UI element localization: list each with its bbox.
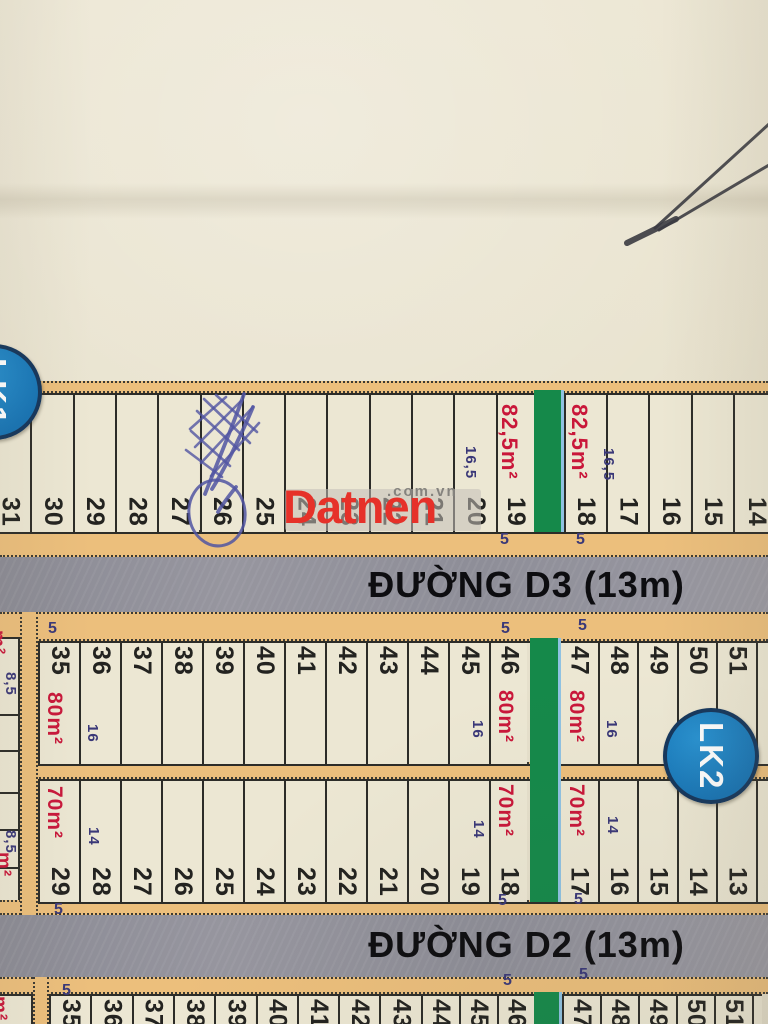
plot-number: 46 (502, 996, 531, 1024)
plot-number: 47 (567, 996, 596, 1024)
plot-number: 13 (722, 864, 751, 902)
plot-number: 42 (345, 996, 374, 1024)
area-label: 80m² (42, 692, 66, 745)
land-plot-map-photo: ĐƯỜNG D3 (13m) ĐƯỜNG D2 (13m) 3130292827… (0, 0, 768, 1024)
plot-number: 25 (249, 494, 278, 532)
area-label: 70m² (564, 784, 588, 837)
plot-number: 37 (127, 643, 156, 681)
width-label: 5 (579, 966, 588, 984)
area-label: 80m² (564, 690, 588, 743)
plot-number: 15 (643, 864, 672, 902)
plot-number: 48 (604, 643, 633, 681)
road-d3-label: ĐƯỜNG D3 (13m) (0, 557, 768, 612)
plot-41: 41 (297, 996, 338, 1024)
plot-37: 37 (120, 643, 161, 764)
edge-plot-divider (0, 750, 18, 752)
dim-label: 16 (603, 720, 620, 739)
area-label: 82,5m² (566, 404, 592, 480)
dim-label: 16,5 (600, 448, 617, 481)
plot-26: 26 (161, 781, 202, 902)
plot-number: 40 (250, 643, 279, 681)
plot-number: 19 (501, 494, 530, 532)
plot-27: 27 (157, 395, 199, 532)
plot-number: 14 (742, 494, 768, 532)
side-road-strip (33, 977, 49, 1024)
plot-number: 27 (165, 494, 194, 532)
plot-number: 18 (571, 494, 600, 532)
plot-number: 49 (643, 996, 672, 1024)
plot-number: 45 (455, 643, 484, 681)
plot-42: 42 (338, 996, 379, 1024)
plot-43: 43 (366, 643, 407, 764)
plot-39: 39 (202, 643, 243, 764)
plot-number: 29 (45, 864, 74, 902)
width-label: 5 (500, 531, 509, 549)
plot-number: 38 (180, 996, 209, 1024)
plot-number: 47 (564, 643, 593, 681)
plot-number: 43 (373, 643, 402, 681)
plot-21: 21 (366, 781, 407, 902)
plot-27: 27 (120, 781, 161, 902)
plot-number: 46 (495, 643, 524, 681)
plot-number: 19 (455, 864, 484, 902)
area-label: 82,5m² (496, 404, 522, 480)
plot-26: 26 (200, 395, 242, 532)
edge-plot-divider (0, 792, 18, 794)
plot-number: 14 (683, 864, 712, 902)
plot-number: 23 (291, 864, 320, 902)
sidewalk-strip (0, 612, 768, 641)
plot-number: 45 (464, 996, 493, 1024)
plot-40: 40 (256, 996, 297, 1024)
green-strip (534, 390, 564, 532)
road-d2-label: ĐƯỜNG D2 (13m) (0, 915, 768, 975)
plot-28: 28 (115, 395, 157, 532)
plot-number: 30 (38, 494, 67, 532)
plot-number: 49 (643, 643, 672, 681)
plot-row-lk2-facing-d2: 2928272625242322212019181716151413 (38, 779, 768, 904)
plot-row-lk2-facing-d3: 3536373839404142434445464748495051 (38, 641, 768, 766)
plot-number: 27 (127, 864, 156, 902)
plot-number: 28 (86, 864, 115, 902)
sidewalk-strip (0, 530, 768, 557)
plot-43: 43 (379, 996, 420, 1024)
plot-37: 37 (132, 996, 173, 1024)
plot-number: 39 (221, 996, 250, 1024)
area-label: m² (0, 852, 14, 877)
area-label: 70m² (493, 784, 517, 837)
plot-number: 28 (123, 494, 152, 532)
side-road-strip (20, 612, 38, 915)
plot-25: 25 (242, 395, 284, 532)
plot-number: 20 (414, 864, 443, 902)
plot-number: 50 (683, 643, 712, 681)
plot-partial (756, 781, 768, 902)
plot-number: 50 (681, 996, 710, 1024)
plot-51: 51 (714, 996, 752, 1024)
plot-44: 44 (407, 643, 448, 764)
plot-23: 23 (284, 781, 325, 902)
plot-48: 48 (600, 996, 638, 1024)
plot-36: 36 (79, 643, 120, 764)
plot-19: 19 (448, 781, 489, 902)
plot-45: 45 (459, 996, 497, 1024)
plot-50: 50 (676, 996, 714, 1024)
plot-number: 15 (698, 494, 727, 532)
width-label: 5 (62, 982, 71, 1000)
edge-plot-divider (0, 714, 18, 716)
area-label: m² (0, 996, 10, 1021)
plot-36: 36 (90, 996, 131, 1024)
green-strip (534, 992, 562, 1024)
plot-number: 36 (86, 643, 115, 681)
plot-number: 42 (332, 643, 361, 681)
plot-20: 20 (407, 781, 448, 902)
plot-48: 48 (598, 643, 638, 764)
block-badge-lk2-label: LK2 (692, 722, 730, 790)
plot-number: 16 (656, 494, 685, 532)
plot-number: 22 (332, 864, 361, 902)
plot-number: 26 (207, 494, 236, 532)
road-d2-band: ĐƯỜNG D2 (13m) (0, 915, 768, 977)
dim-label: 14 (470, 820, 487, 839)
dim-label: 8,5 (2, 830, 19, 854)
dim-label: 14 (85, 827, 102, 846)
plot-number: 41 (304, 996, 333, 1024)
plot-number: 41 (291, 643, 320, 681)
sidewalk-strip (0, 977, 768, 994)
plot-number: 39 (209, 643, 238, 681)
plot-41: 41 (284, 643, 325, 764)
plot-15: 15 (637, 781, 677, 902)
area-label: m² (0, 630, 8, 655)
width-label: 5 (498, 892, 507, 910)
area-label: 70m² (42, 786, 66, 839)
plot-number: 35 (45, 643, 74, 681)
plot-number: 31 (0, 494, 25, 532)
plot-number: 38 (168, 643, 197, 681)
plot-35: 35 (49, 996, 90, 1024)
plot-30: 30 (30, 395, 72, 532)
watermark-brand: Datnen (283, 479, 436, 534)
plot-45: 45 (448, 643, 489, 764)
plot-49: 49 (638, 996, 676, 1024)
plot-number: 51 (719, 996, 748, 1024)
dim-label: 14 (604, 816, 621, 835)
width-label: 5 (503, 972, 512, 990)
plot-number: 44 (426, 996, 455, 1024)
plot-row-lk3-facing-d2: 3536373839404142434445464748495051 (49, 994, 762, 1024)
plot-22: 22 (325, 781, 366, 902)
plot-number: 44 (414, 643, 443, 681)
plot-number: 35 (56, 996, 85, 1024)
photo-shadow (0, 183, 768, 219)
plot-partial (752, 996, 762, 1024)
plot-number: 51 (722, 643, 751, 681)
plot-46: 46 (497, 996, 534, 1024)
area-label: 80m² (493, 690, 517, 743)
plot-15: 15 (691, 395, 733, 532)
block-badge-lk1-label: LK1 (0, 358, 13, 426)
width-label: 5 (48, 620, 57, 638)
plot-number: 21 (373, 864, 402, 902)
plot-38: 38 (161, 643, 202, 764)
plot-29: 29 (73, 395, 115, 532)
width-label: 5 (576, 531, 585, 549)
width-label: 5 (578, 617, 587, 635)
plot-25: 25 (202, 781, 243, 902)
plot-number: 24 (250, 864, 279, 902)
dim-label: 16 (469, 720, 486, 739)
photo-diagonal-line (627, 219, 676, 243)
dim-label: 16 (84, 724, 101, 743)
plot-38: 38 (173, 996, 214, 1024)
plot-number: 17 (614, 494, 643, 532)
width-label: 5 (501, 620, 510, 638)
plot-24: 24 (243, 781, 284, 902)
plot-39: 39 (214, 996, 255, 1024)
dim-label: 8,5 (2, 672, 19, 696)
width-label: 5 (54, 901, 63, 919)
plot-number: 25 (209, 864, 238, 902)
plot-14: 14 (733, 395, 768, 532)
plot-16: 16 (598, 781, 638, 902)
dim-label: 16,5 (462, 446, 479, 479)
plot-number: 48 (605, 996, 634, 1024)
plot-number: 40 (263, 996, 292, 1024)
road-d3-band: ĐƯỜNG D3 (13m) (0, 557, 768, 612)
plot-44: 44 (421, 996, 459, 1024)
plot-number: 26 (168, 864, 197, 902)
plot-number: 36 (97, 996, 126, 1024)
plot-number: 43 (387, 996, 416, 1024)
sidewalk-strip (0, 381, 768, 393)
plot-40: 40 (243, 643, 284, 764)
plot-number: 29 (80, 494, 109, 532)
plot-number: 37 (139, 996, 168, 1024)
green-strip (530, 638, 561, 902)
width-label: 5 (574, 891, 583, 909)
block-badge-lk2: LK2 (663, 708, 759, 804)
plot-16: 16 (648, 395, 690, 532)
plot-42: 42 (325, 643, 366, 764)
plot-47: 47 (562, 996, 600, 1024)
plot-number: 16 (604, 864, 633, 902)
